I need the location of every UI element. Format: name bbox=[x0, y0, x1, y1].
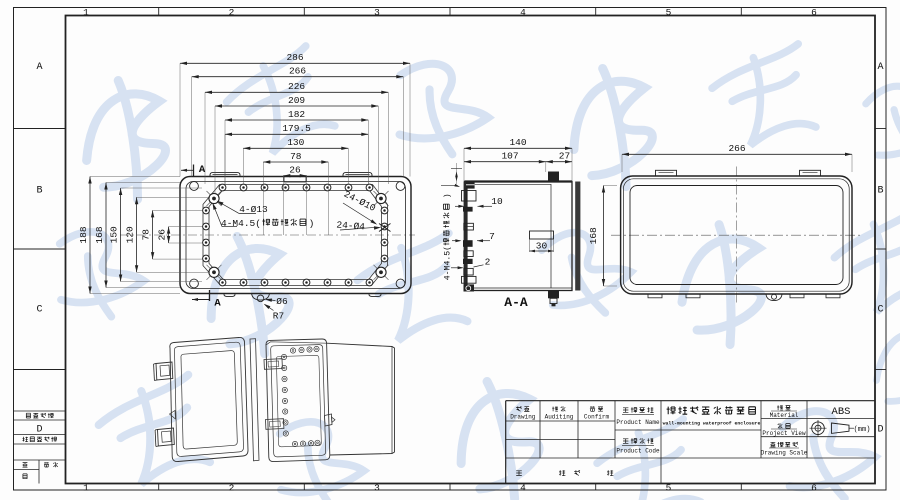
svg-text:10: 10 bbox=[491, 196, 503, 207]
svg-text:1: 1 bbox=[83, 483, 89, 494]
svg-text:5: 5 bbox=[666, 7, 672, 18]
svg-text:266: 266 bbox=[728, 143, 745, 154]
svg-text:B: B bbox=[877, 186, 883, 197]
svg-text:188: 188 bbox=[78, 226, 89, 243]
svg-text:150: 150 bbox=[109, 226, 120, 243]
svg-text:107: 107 bbox=[501, 150, 518, 161]
svg-text:Project View: Project View bbox=[762, 430, 806, 437]
svg-text:140: 140 bbox=[509, 137, 526, 148]
svg-text:Auditing: Auditing bbox=[545, 413, 574, 420]
svg-text:C: C bbox=[877, 305, 883, 316]
svg-text:266: 266 bbox=[289, 66, 306, 77]
svg-text:D: D bbox=[36, 425, 42, 436]
svg-text:168: 168 bbox=[588, 227, 599, 244]
svg-text:4-M4.5(: 4-M4.5( bbox=[221, 218, 261, 229]
svg-text:A: A bbox=[199, 164, 206, 176]
svg-text:A: A bbox=[214, 298, 221, 310]
svg-text:Ø6: Ø6 bbox=[276, 296, 288, 307]
svg-text:130: 130 bbox=[287, 137, 304, 148]
svg-text:3: 3 bbox=[374, 7, 380, 18]
svg-text:C: C bbox=[36, 305, 42, 316]
svg-text:168: 168 bbox=[94, 226, 105, 243]
svg-text:Material: Material bbox=[770, 412, 799, 419]
svg-text:2: 2 bbox=[229, 483, 235, 494]
svg-text:(mm): (mm) bbox=[854, 426, 871, 434]
svg-text:A: A bbox=[36, 62, 42, 73]
svg-text:26: 26 bbox=[157, 229, 168, 241]
svg-text:2: 2 bbox=[229, 7, 235, 18]
svg-text:4: 4 bbox=[520, 7, 526, 18]
svg-text:D: D bbox=[877, 425, 883, 436]
svg-text:7: 7 bbox=[489, 231, 495, 242]
svg-text:24-Ø4: 24-Ø4 bbox=[336, 220, 366, 233]
svg-text:A: A bbox=[877, 62, 883, 73]
svg-text:R7: R7 bbox=[273, 311, 284, 322]
svg-text:6: 6 bbox=[811, 7, 817, 18]
svg-text:209: 209 bbox=[288, 95, 305, 106]
svg-text:Confirm: Confirm bbox=[584, 413, 610, 420]
svg-text:179.5: 179.5 bbox=[282, 123, 311, 134]
svg-text:wall-mounting waterproof enclo: wall-mounting waterproof enclosure bbox=[663, 421, 761, 427]
svg-text:4: 4 bbox=[520, 483, 526, 494]
svg-text:Product Code: Product Code bbox=[616, 447, 660, 454]
svg-text:A-A: A-A bbox=[504, 295, 528, 310]
svg-text:4-M4.5(: 4-M4.5( bbox=[442, 246, 452, 280]
svg-text:120: 120 bbox=[125, 226, 136, 243]
svg-text:ABS: ABS bbox=[832, 406, 851, 418]
svg-text:5: 5 bbox=[666, 483, 672, 494]
svg-text:B: B bbox=[36, 186, 42, 197]
svg-text:26: 26 bbox=[289, 165, 301, 176]
svg-text:182: 182 bbox=[288, 109, 305, 120]
svg-text:Drawing Scale: Drawing Scale bbox=[761, 449, 808, 456]
svg-text:): ) bbox=[309, 218, 315, 229]
svg-text:3: 3 bbox=[374, 483, 380, 494]
svg-text:1: 1 bbox=[83, 7, 89, 18]
svg-text:Drawing: Drawing bbox=[510, 413, 536, 420]
svg-text:): ) bbox=[442, 193, 452, 198]
svg-text:226: 226 bbox=[288, 81, 305, 92]
svg-text:78: 78 bbox=[141, 229, 152, 241]
svg-text:27: 27 bbox=[559, 150, 570, 161]
svg-text:78: 78 bbox=[290, 151, 302, 162]
svg-text:6: 6 bbox=[811, 483, 817, 494]
svg-text:2: 2 bbox=[485, 257, 491, 268]
svg-text:286: 286 bbox=[286, 52, 303, 63]
svg-text:Product Name: Product Name bbox=[616, 419, 660, 426]
svg-text:30: 30 bbox=[536, 241, 548, 252]
